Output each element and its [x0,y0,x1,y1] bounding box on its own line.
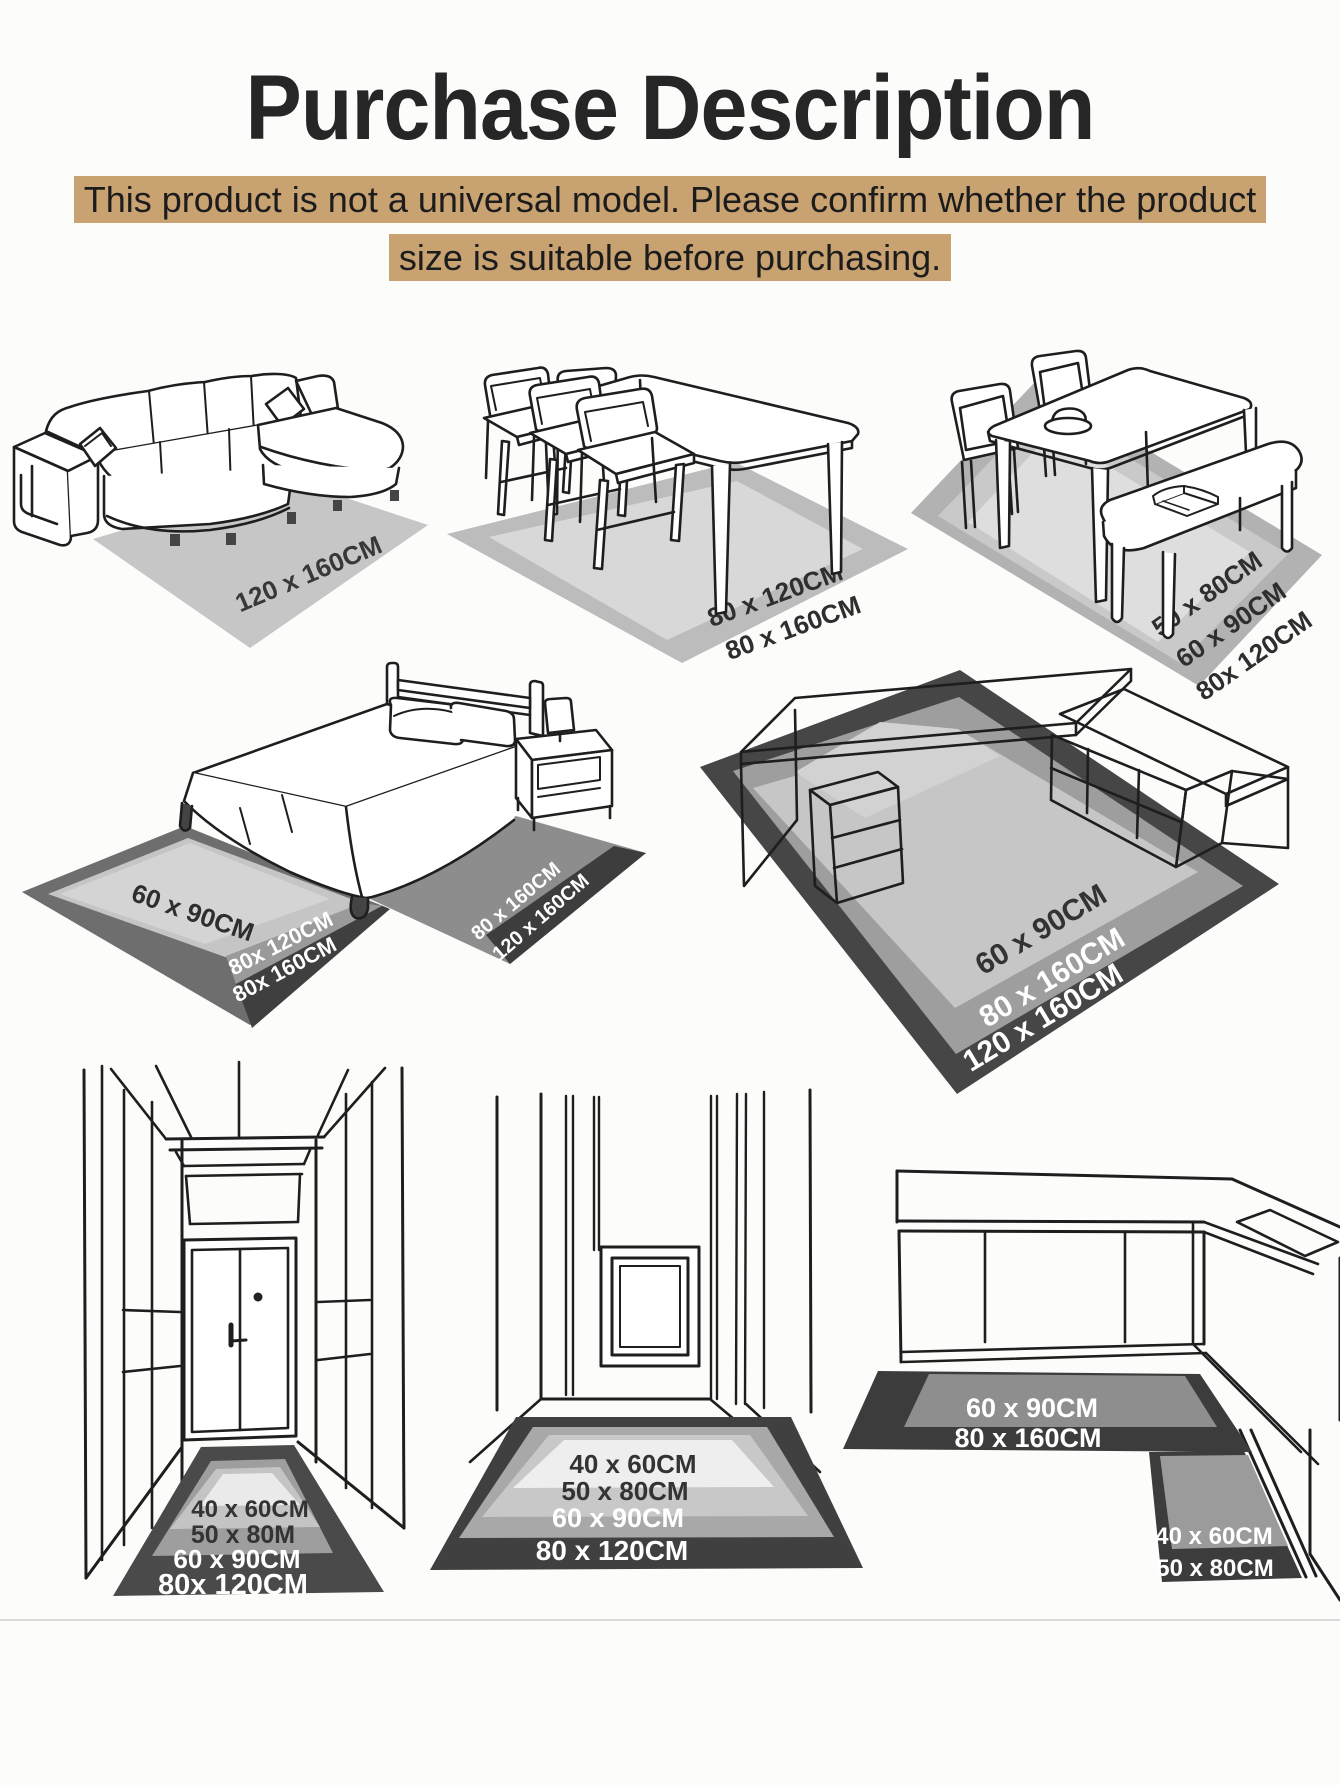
svg-text:80x 120CM: 80x 120CM [158,1569,308,1601]
svg-text:60 x 90CM: 60 x 90CM [966,1393,1098,1423]
svg-text:40 x 60CM: 40 x 60CM [1155,1523,1272,1550]
svg-text:50 x 80CM: 50 x 80CM [1156,1555,1273,1582]
svg-text:40 x 60CM: 40 x 60CM [191,1496,308,1523]
svg-text:40 x 60CM: 40 x 60CM [569,1449,696,1479]
svg-text:80 x 120CM: 80 x 120CM [536,1535,689,1566]
svg-text:60 x 90CM: 60 x 90CM [552,1503,684,1533]
svg-text:80 x 160CM: 80 x 160CM [954,1423,1101,1453]
svg-text:50 x 80CM: 50 x 80CM [561,1476,688,1506]
